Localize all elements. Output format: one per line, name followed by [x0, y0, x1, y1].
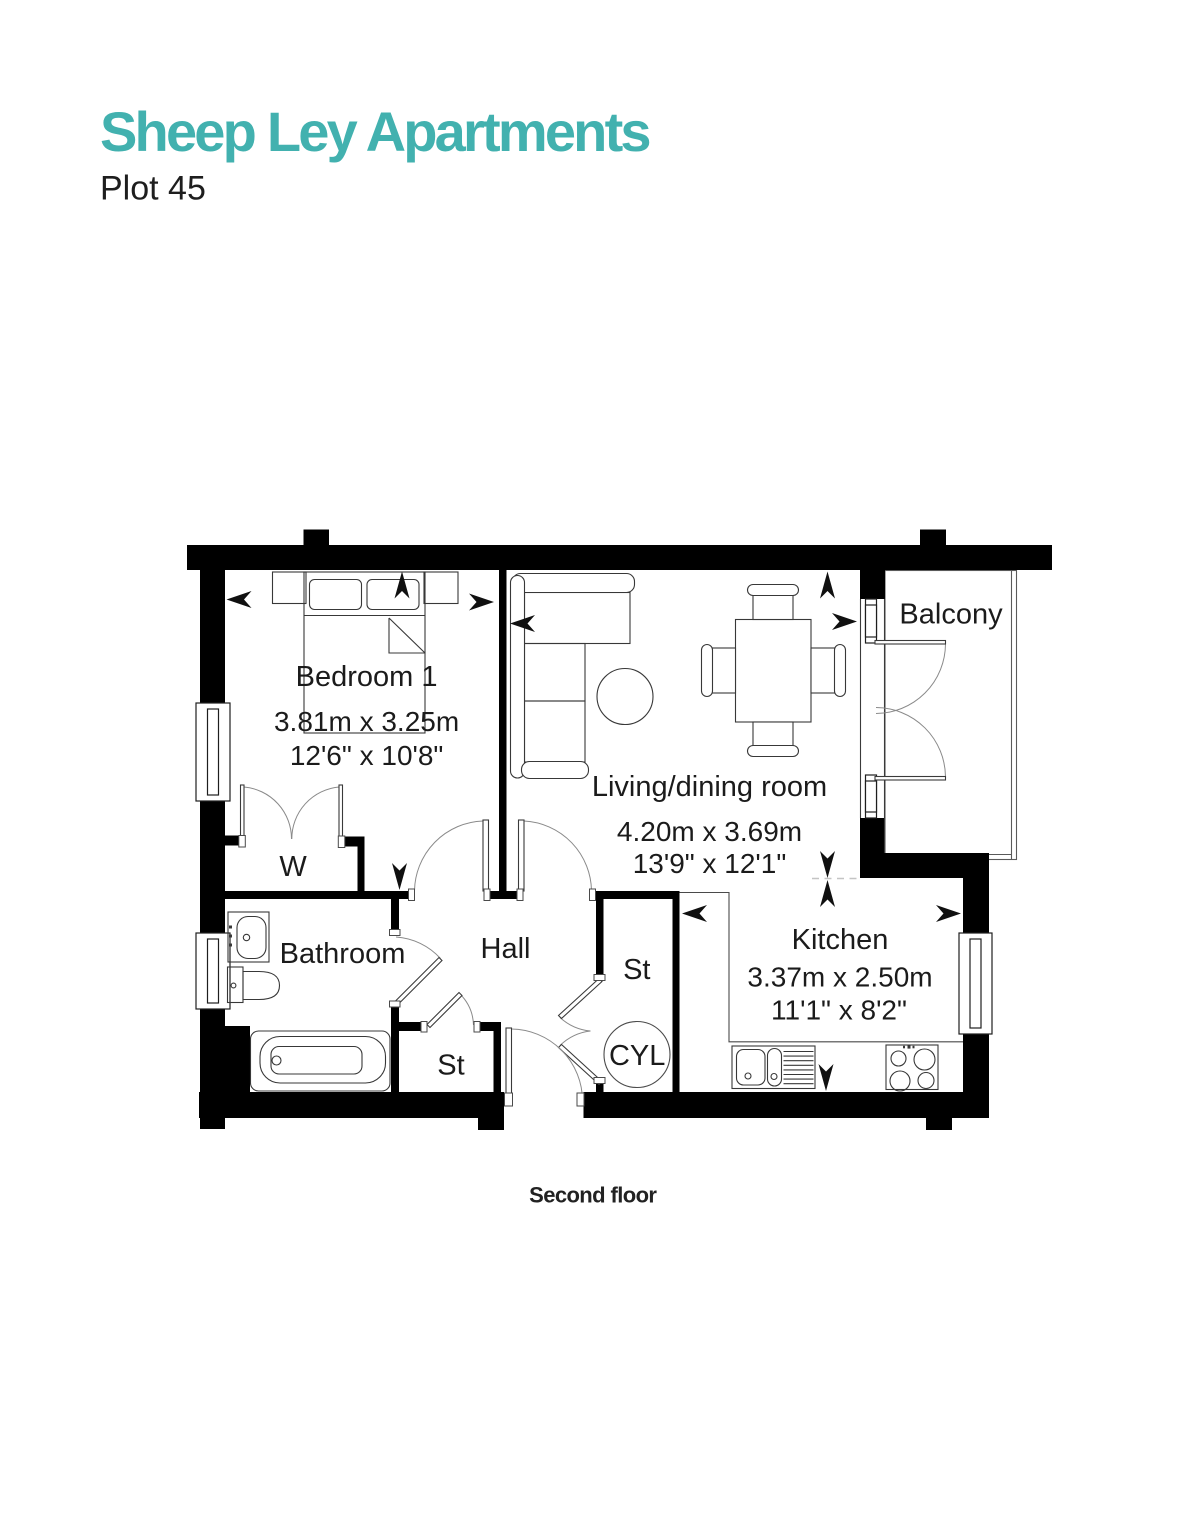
svg-text:3.37m x 2.50m: 3.37m x 2.50m — [747, 962, 932, 993]
svg-text:CYL: CYL — [609, 1040, 665, 1072]
svg-text:Bedroom 1: Bedroom 1 — [296, 661, 438, 693]
svg-text:4.20m x 3.69m: 4.20m x 3.69m — [617, 816, 802, 847]
svg-text:W: W — [279, 851, 307, 883]
svg-text:Hall: Hall — [481, 933, 531, 965]
svg-text:3.81m x 3.25m: 3.81m x 3.25m — [274, 706, 459, 737]
svg-text:Living/dining room: Living/dining room — [592, 771, 827, 803]
svg-text:12'6" x 10'8": 12'6" x 10'8" — [290, 740, 444, 771]
svg-text:Second floor: Second floor — [529, 1183, 657, 1208]
svg-text:Plot 45: Plot 45 — [100, 170, 206, 208]
svg-text:Bathroom: Bathroom — [280, 938, 406, 970]
svg-text:St: St — [437, 1050, 464, 1082]
svg-text:Kitchen: Kitchen — [792, 924, 889, 956]
svg-text:13'9" x 12'1": 13'9" x 12'1" — [633, 848, 787, 879]
svg-text:St: St — [623, 954, 650, 986]
svg-text:11'1" x 8'2": 11'1" x 8'2" — [771, 995, 907, 1026]
svg-text:Sheep Ley Apartments: Sheep Ley Apartments — [100, 100, 649, 163]
svg-text:Balcony: Balcony — [899, 599, 1003, 631]
